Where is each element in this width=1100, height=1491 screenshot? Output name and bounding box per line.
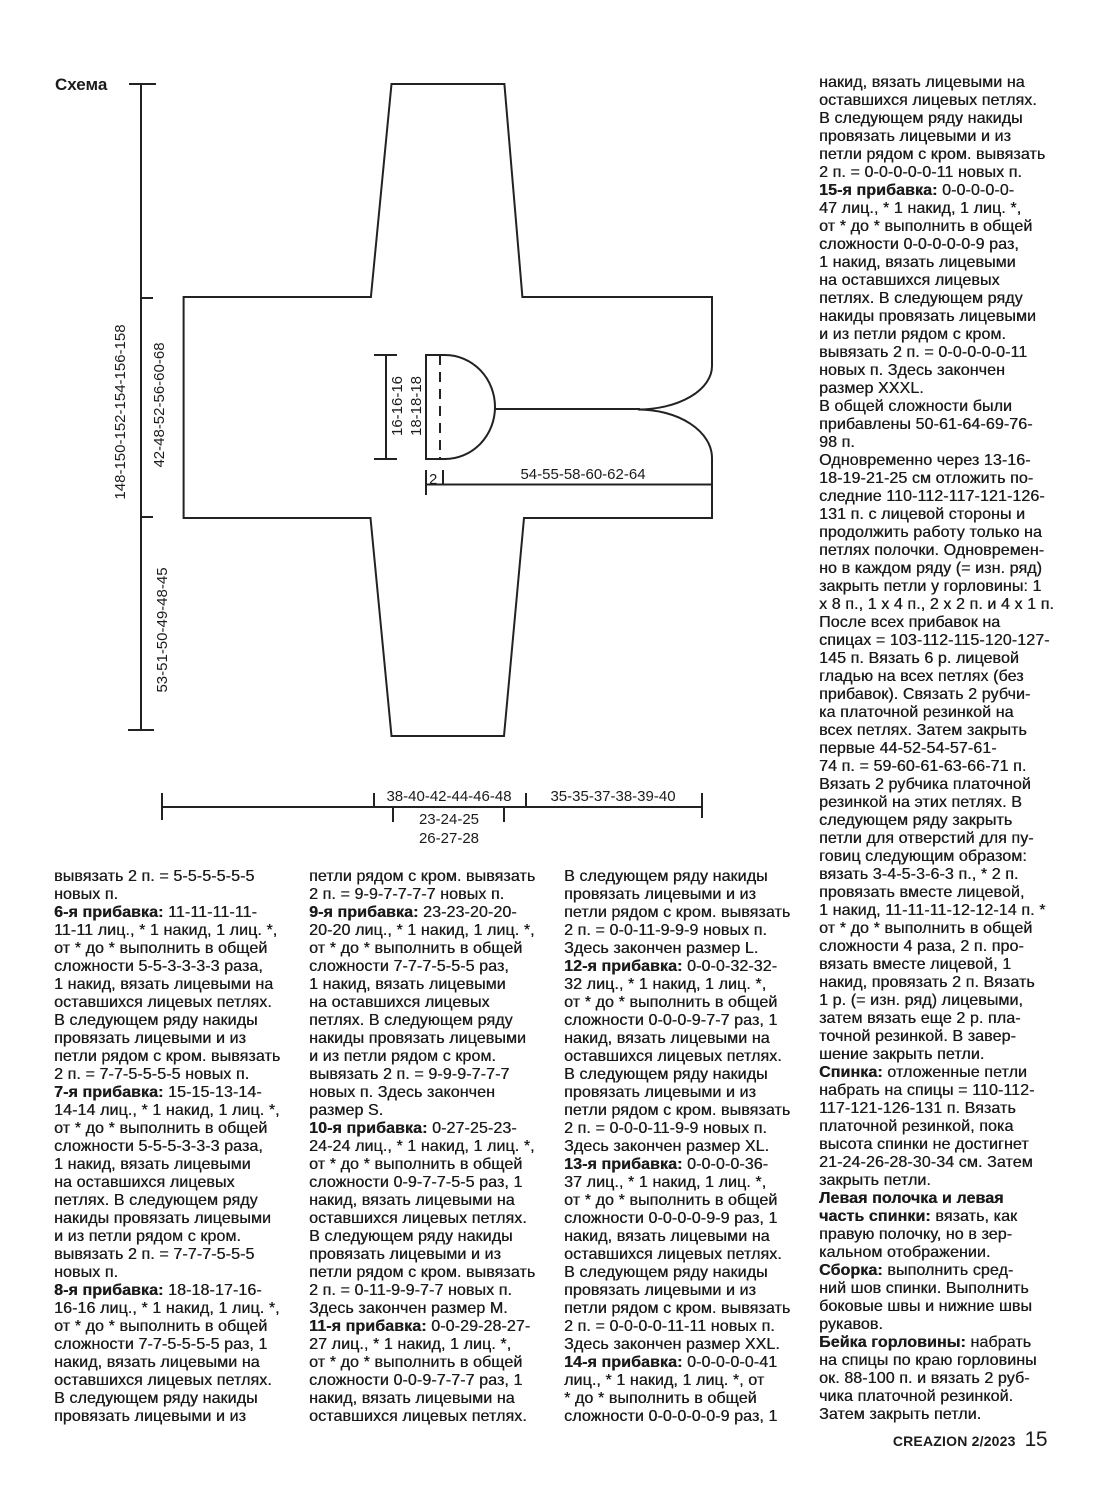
svg-text:148-150-152-154-156-158: 148-150-152-154-156-158 bbox=[112, 324, 129, 499]
svg-text:54-55-58-60-62-64: 54-55-58-60-62-64 bbox=[520, 466, 645, 483]
svg-text:Схема: Схема bbox=[55, 75, 108, 94]
svg-text:16-16-16: 16-16-16 bbox=[389, 376, 406, 436]
svg-text:26-27-28: 26-27-28 bbox=[419, 830, 479, 847]
svg-text:38-40-42-44-46-48: 38-40-42-44-46-48 bbox=[386, 788, 511, 805]
svg-text:35-35-37-38-39-40: 35-35-37-38-39-40 bbox=[550, 788, 675, 805]
svg-text:23-24-25: 23-24-25 bbox=[419, 811, 479, 828]
svg-text:53-51-50-49-48-45: 53-51-50-49-48-45 bbox=[154, 567, 171, 692]
svg-text:2: 2 bbox=[429, 471, 437, 488]
svg-text:42-48-52-56-60-68: 42-48-52-56-60-68 bbox=[151, 342, 168, 467]
svg-text:18-18-18: 18-18-18 bbox=[408, 376, 425, 436]
